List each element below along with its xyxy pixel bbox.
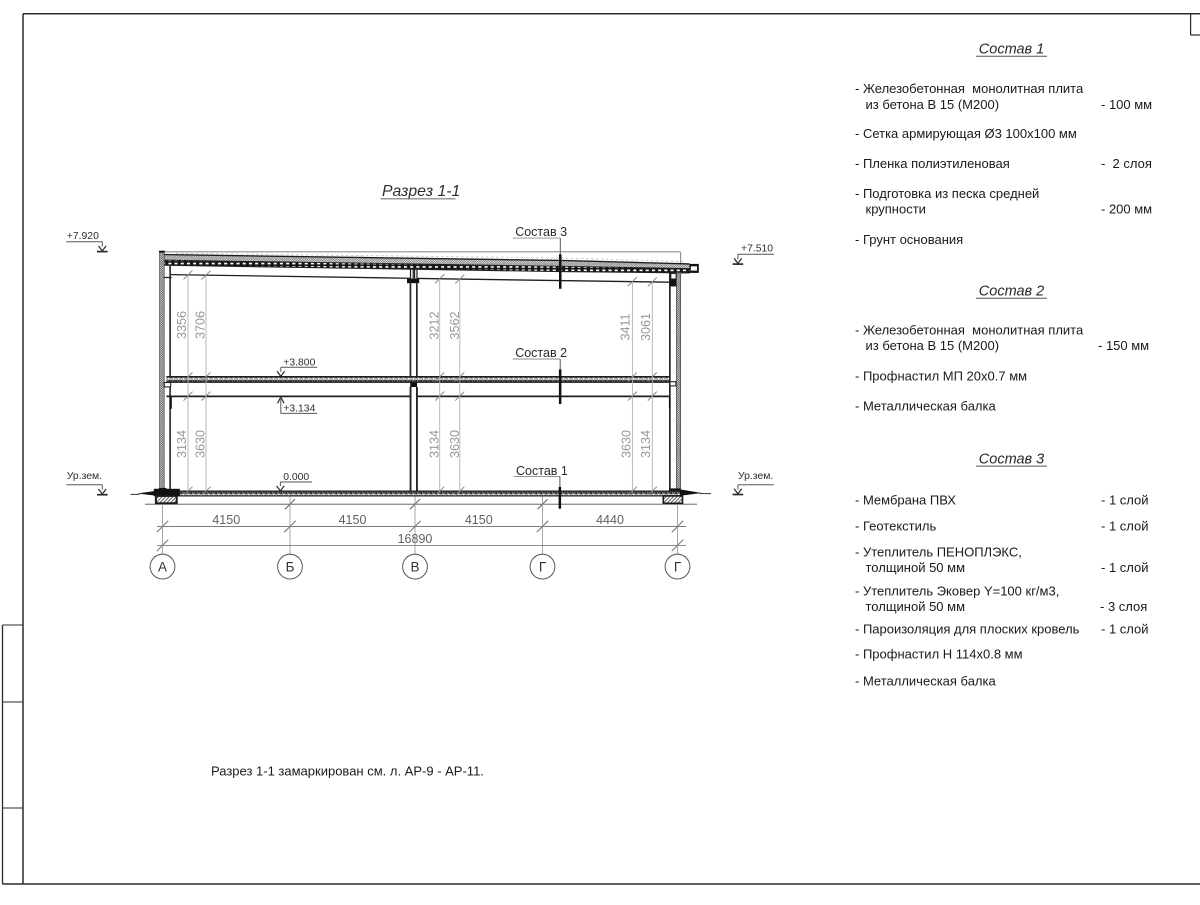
svg-text:- Мембрана ПВХ: - Мембрана ПВХ bbox=[855, 492, 956, 507]
svg-text:3630: 3630 bbox=[194, 430, 208, 458]
svg-text:- 2 слоя: - 2 слоя bbox=[1101, 156, 1152, 171]
svg-text:- Геотекстиль: - Геотекстиль bbox=[855, 518, 936, 533]
svg-text:+3.800: +3.800 bbox=[283, 357, 315, 368]
svg-text:А: А bbox=[158, 559, 167, 574]
svg-text:- 3 слоя: - 3 слоя bbox=[1100, 599, 1147, 614]
svg-text:4440: 4440 bbox=[596, 513, 624, 527]
svg-text:Разрез 1-1: Разрез 1-1 bbox=[382, 183, 460, 200]
svg-text:- 150 мм: - 150 мм bbox=[1098, 338, 1149, 353]
svg-text:3630: 3630 bbox=[448, 430, 462, 458]
svg-text:- Утеплитель Эковер Y=100 кг/м: - Утеплитель Эковер Y=100 кг/м3, bbox=[855, 583, 1059, 598]
svg-text:Г: Г bbox=[539, 559, 547, 574]
svg-text:Состав 2: Состав 2 bbox=[515, 346, 567, 360]
svg-text:Состав 1: Состав 1 bbox=[516, 464, 568, 478]
svg-text:из бетона В 15 (М200): из бетона В 15 (М200) bbox=[866, 338, 1000, 353]
svg-text:- 200 мм: - 200 мм bbox=[1101, 202, 1152, 217]
svg-text:- Железобетонная монолитная п: - Железобетонная монолитная плита bbox=[855, 323, 1084, 338]
svg-text:4150: 4150 bbox=[212, 513, 240, 527]
svg-text:Состав 3: Состав 3 bbox=[979, 451, 1044, 467]
svg-text:Состав 1: Состав 1 bbox=[979, 42, 1044, 58]
svg-text:3134: 3134 bbox=[639, 430, 653, 458]
svg-text:- 1 слой: - 1 слой bbox=[1101, 518, 1149, 533]
svg-text:- Утеплитель ПЕНОПЛЭКС,: - Утеплитель ПЕНОПЛЭКС, bbox=[855, 544, 1022, 559]
svg-text:+7.920: +7.920 bbox=[67, 231, 99, 242]
svg-text:Ур.зем.: Ур.зем. bbox=[67, 471, 102, 482]
svg-text:3411: 3411 bbox=[619, 313, 633, 340]
svg-text:3356: 3356 bbox=[175, 311, 189, 339]
svg-text:0.000: 0.000 bbox=[283, 472, 309, 483]
svg-text:3630: 3630 bbox=[620, 430, 634, 458]
svg-text:- 1 слой: - 1 слой bbox=[1101, 492, 1149, 507]
svg-text:3212: 3212 bbox=[428, 311, 442, 339]
svg-text:3061: 3061 bbox=[639, 313, 653, 341]
svg-text:- 1 слой: - 1 слой bbox=[1101, 560, 1149, 575]
svg-text:3706: 3706 bbox=[194, 311, 208, 339]
svg-text:3134: 3134 bbox=[175, 430, 189, 458]
svg-text:толщиной 50 мм: толщиной 50 мм bbox=[866, 599, 966, 614]
svg-text:3134: 3134 bbox=[428, 430, 442, 458]
svg-text:Г: Г bbox=[674, 559, 682, 574]
svg-text:Состав 2: Состав 2 bbox=[979, 284, 1044, 300]
svg-text:- 100 мм: - 100 мм bbox=[1101, 97, 1152, 112]
svg-text:16890: 16890 bbox=[398, 532, 433, 546]
svg-text:- Грунт основания: - Грунт основания bbox=[855, 232, 963, 247]
svg-text:+7.510: +7.510 bbox=[741, 244, 773, 255]
svg-text:В: В bbox=[410, 559, 419, 574]
svg-text:- Пленка полиэтиленовая: - Пленка полиэтиленовая bbox=[855, 156, 1010, 171]
svg-text:- Сетка армирующая Ø3 100x100: - Сетка армирующая Ø3 100x100 мм bbox=[855, 126, 1077, 141]
svg-text:- Подготовка из песка средней: - Подготовка из песка средней bbox=[855, 186, 1039, 201]
svg-text:4150: 4150 bbox=[339, 513, 367, 527]
svg-text:- Профнастил МП 20х0.7 мм: - Профнастил МП 20х0.7 мм bbox=[855, 368, 1027, 383]
svg-text:Ур.зем.: Ур.зем. bbox=[738, 471, 773, 482]
svg-text:- 1 слой: - 1 слой bbox=[1101, 622, 1149, 637]
svg-text:Состав 3: Состав 3 bbox=[515, 225, 567, 239]
svg-text:- Железобетонная монолитная п: - Железобетонная монолитная плита bbox=[855, 81, 1084, 96]
svg-text:- Профнастил Н 114х0.8 мм: - Профнастил Н 114х0.8 мм bbox=[855, 647, 1023, 662]
svg-text:3562: 3562 bbox=[448, 311, 462, 339]
svg-text:Б: Б bbox=[286, 559, 295, 574]
svg-text:- Металлическая балка: - Металлическая балка bbox=[855, 674, 996, 689]
svg-text:- Металлическая балка: - Металлическая балка bbox=[855, 398, 996, 413]
svg-text:- Пароизоляция для плоских кро: - Пароизоляция для плоских кровель bbox=[855, 622, 1080, 637]
svg-text:Разрез 1-1 замаркирован см. л.: Разрез 1-1 замаркирован см. л. АР-9 - АР… bbox=[211, 763, 484, 778]
svg-text:толщиной 50 мм: толщиной 50 мм bbox=[866, 560, 966, 575]
svg-text:из бетона В 15 (М200): из бетона В 15 (М200) bbox=[866, 97, 1000, 112]
svg-text:4150: 4150 bbox=[465, 513, 493, 527]
svg-text:крупности: крупности bbox=[866, 202, 926, 217]
